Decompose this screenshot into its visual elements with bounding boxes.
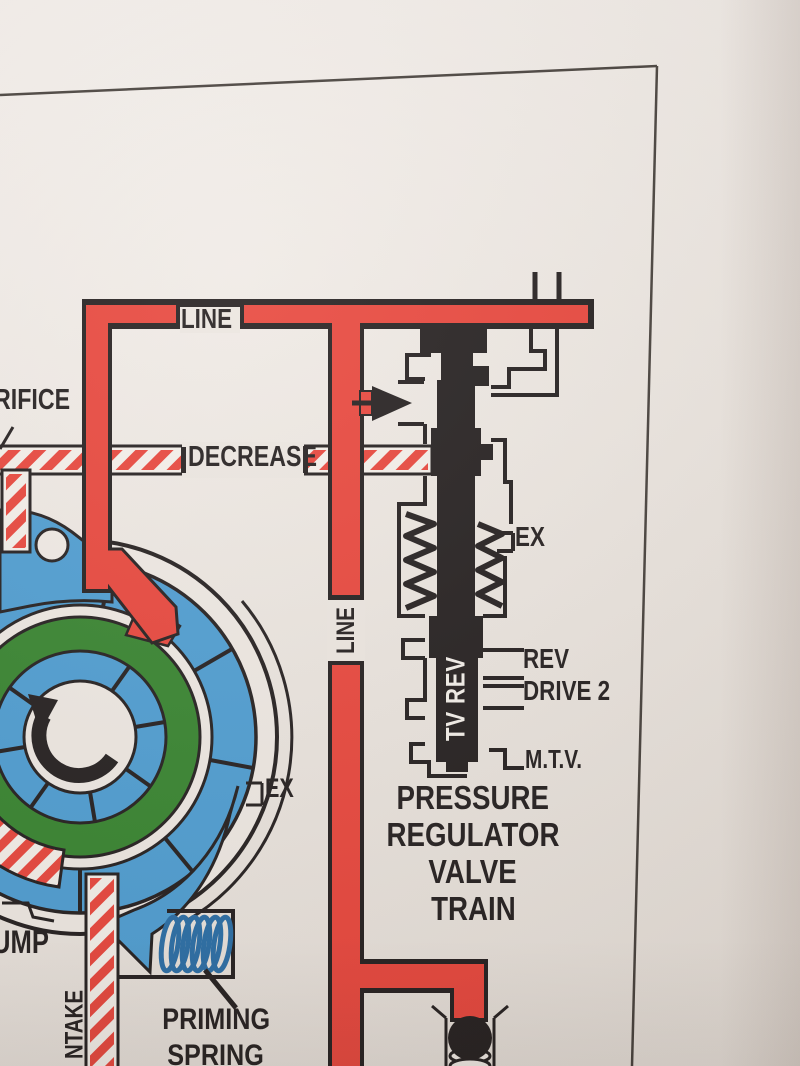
- label-ex-valve: EX: [515, 523, 552, 551]
- label-pump-ex: EX: [265, 775, 301, 802]
- label-drive2-port: DRIVE 2: [523, 677, 632, 705]
- label-orifice-partial: RIFICE: [0, 386, 89, 415]
- diagram-page: LINE RIFICE DECREASE LINE EX REV DRIVE 2…: [0, 0, 800, 1066]
- label-pump-partial: UMP: [0, 926, 63, 958]
- label-line-vertical: LINE: [321, 599, 371, 661]
- valve-train-title: PRESSURE REGULATOR VALVE TRAIN: [366, 779, 580, 927]
- label-spool-tv-rev: TV REV: [428, 630, 484, 766]
- label-intake-partial: NTAKE: [48, 968, 102, 1066]
- label-rev-port: REV: [523, 645, 581, 673]
- priming-spring-label: PRIMING SPRING: [146, 1002, 286, 1066]
- label-decrease: DECREASE: [188, 443, 349, 472]
- diagram-labels: LINE RIFICE DECREASE LINE EX REV DRIVE 2…: [0, 0, 800, 1066]
- label-line-top: LINE: [181, 305, 245, 333]
- label-mtv-port: M.T.V.: [525, 746, 596, 772]
